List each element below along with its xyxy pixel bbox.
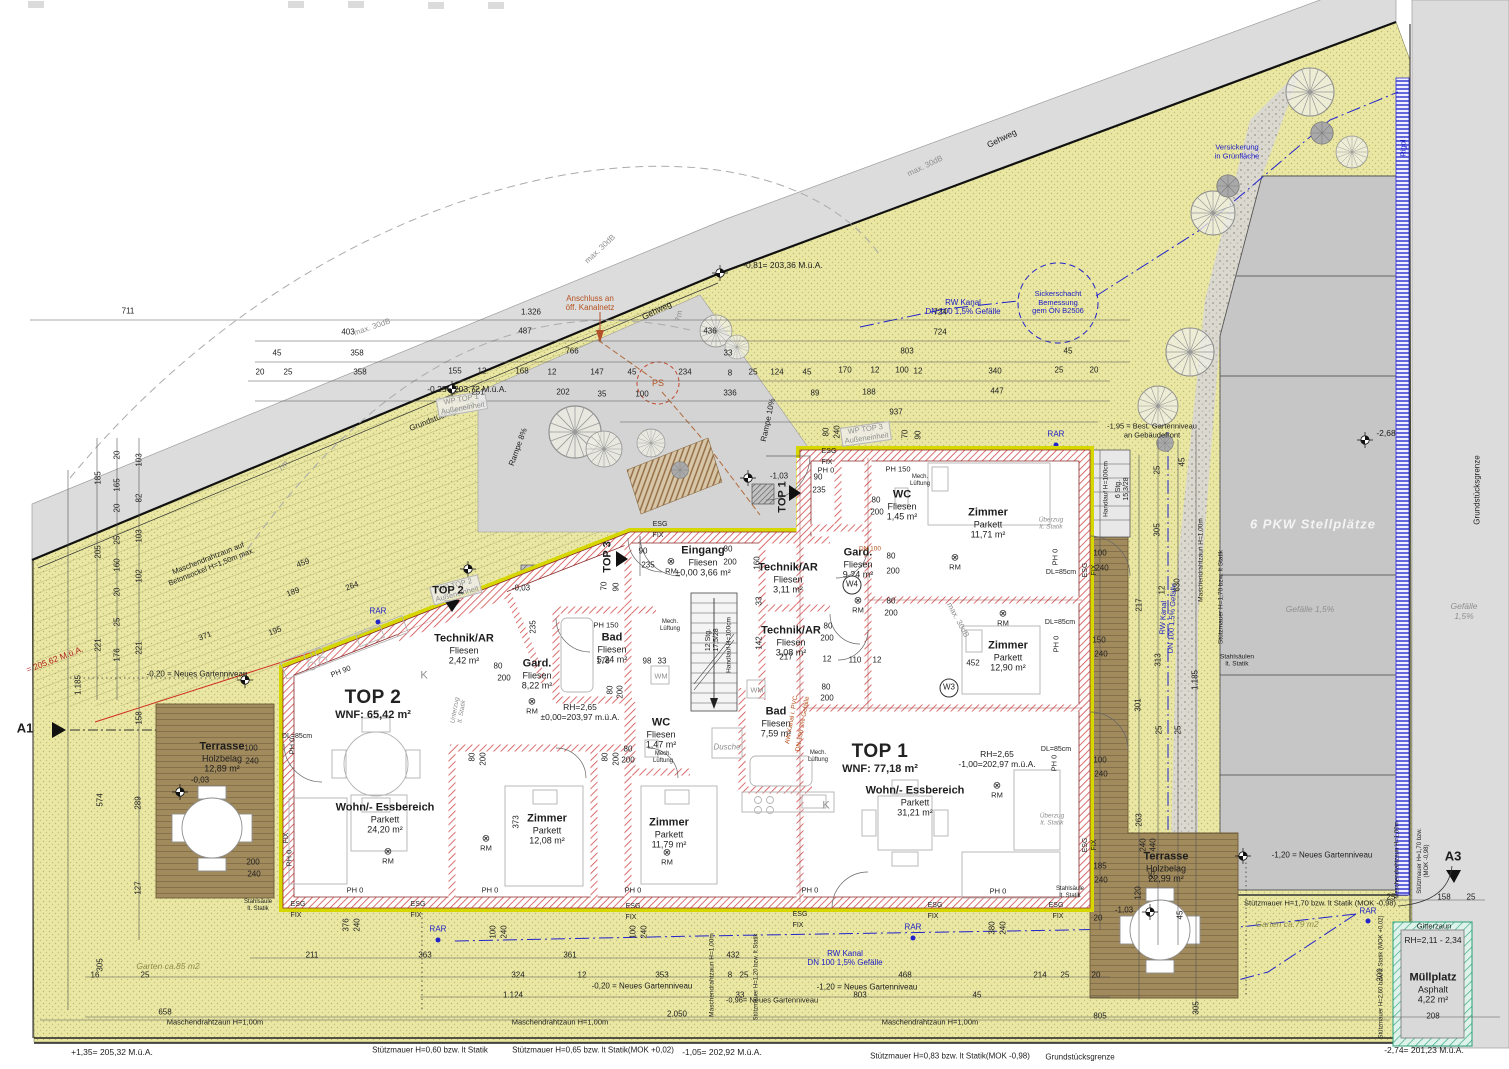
dimension-label: 70 [900, 430, 909, 439]
level: -2,68 [1376, 429, 1395, 439]
window-mark: W4 [843, 576, 862, 595]
dimension-label: 25 [284, 367, 293, 376]
dimension-label: 25 [112, 536, 121, 545]
ph-label: PH 0 [286, 850, 295, 867]
room-wc-top2: WCFliesen 1,47 m² [646, 716, 677, 749]
rar-label: RAR [1048, 429, 1065, 438]
dimension-label: 251 [471, 387, 484, 396]
note-gartenniveau: -0,20 = Neues Gartenniveau [147, 669, 248, 678]
dimension-label: 200 [615, 685, 624, 698]
room-eingang: EingangFliesen ±0,00 3,66 m² [675, 544, 730, 577]
glass-label: FIX [793, 922, 804, 930]
terrace-right-label: TerrasseHolzbelag 22,99 m² [1143, 850, 1188, 883]
slope-label: Gefälle 1,5% [1442, 602, 1487, 622]
smoke-detector: ⊗RM [382, 848, 394, 865]
rw-kanal-label: RW Kanal DN 100 1,5% Gefälle [807, 949, 882, 967]
section-mark-a3: A3 [1445, 850, 1462, 865]
level: -0,25= 203,72 M.ü.A. [427, 385, 507, 395]
dimension-label: 200 [820, 693, 833, 702]
room-wohn-top2: Wohn/- EssbereichParkett 24,20 m² [336, 801, 435, 834]
dimension-label: 1.185 [1190, 670, 1199, 690]
kanal-anschluss-label: Anschluss an öff. Kanalnetz [566, 294, 615, 312]
glass-label: ESG [1082, 838, 1090, 853]
dimension-label: 8 [728, 368, 732, 377]
dimension-label: 160 [112, 558, 121, 571]
dimension-label: 487 [518, 326, 531, 335]
dimension-label: 373 [511, 815, 520, 828]
ph-label: PH 0 [289, 738, 298, 755]
dimension-label: 80 [887, 596, 896, 605]
door-label: DL=85cm [282, 733, 312, 741]
dimension-label: 90 [611, 583, 620, 592]
dimension-label: 33 [658, 656, 667, 665]
terrace-left-label: TerrasseHolzbelag 12,89 m² [199, 740, 244, 773]
dimension-label: 100 [244, 743, 257, 752]
glass-label: FIX [291, 912, 302, 920]
aw-kanal-label: DN 100 [859, 545, 881, 552]
dimension-label: 766 [565, 346, 578, 355]
fence-label: Maschendrahtzaun H=1,00m [512, 1019, 609, 1028]
wall-label: Stützmauer H=1,70 bzw. lt Statik [1217, 550, 1224, 644]
dimension-label: 80 [605, 686, 614, 695]
room-zimmer2-top2: ZimmerParkett 11,79 m² [649, 816, 689, 849]
kitchen-label: K [420, 670, 427, 683]
dimension-label: 12 [871, 365, 880, 374]
wp-unit-label: WP TOP 1 Außeneinheit [436, 390, 489, 418]
dimension-label: 70 [599, 582, 608, 591]
steel-label: Stahlsäule lt. Statik [244, 899, 272, 913]
dimension-label: 235 [641, 560, 654, 569]
level: -0,03 [191, 775, 209, 784]
wall-label: Stützmauer H=2,60 bzw. lt Statik (MOK +0… [1379, 915, 1386, 1038]
dimension-label: 124 [770, 367, 783, 376]
dimension-label: 178 [596, 656, 609, 665]
dimension-label: 100 [635, 389, 648, 398]
boundary-label: Grundstücksgrenze [1045, 1052, 1114, 1061]
smoke-detector: ⊗RM [997, 610, 1009, 627]
dimension-label: 80 [872, 495, 881, 504]
glass-label: FIX [653, 532, 664, 540]
window-mark: W3 [940, 679, 959, 698]
wp-unit-label: WP TOP 3 Außeneinheit [840, 421, 892, 447]
level: +1,35= 205,32 M.ü.A. [71, 1048, 153, 1058]
stair-label: 12 Stg. 17,5/28 [705, 628, 721, 651]
kitchen-label: K [822, 800, 829, 813]
level: -0,03 [512, 583, 530, 592]
wm-label: WM [750, 687, 763, 696]
wall-label: Stützmauer H=0,60 bzw. lt Statik [372, 1045, 488, 1054]
glass-label: ESG [411, 901, 426, 909]
dimension-label: 240 [1138, 838, 1147, 851]
wall-label: Stützmauer H=1,20 bzw. lt Statik [754, 934, 761, 1021]
dimension-label: 202 [556, 387, 569, 396]
dimension-label: 724 [933, 307, 946, 316]
dimension-label: 25 [740, 970, 749, 979]
dimension-label: 20 [112, 451, 121, 460]
dimension-label: 25 [1173, 726, 1182, 735]
dimension-label: 35 [598, 389, 607, 398]
dimension-label: 221 [134, 641, 143, 654]
room-bad-top2: BadFliesen 5,24 m² [597, 631, 628, 664]
dimension-label: 432 [726, 950, 739, 959]
smoke-detector: ⊗RM [480, 835, 492, 852]
rar-label: RAR [370, 606, 387, 615]
dimension-label: 363 [418, 950, 431, 959]
dimension-label: 90 [814, 472, 823, 481]
smoke-detector: ⊗RM [665, 558, 677, 575]
rw-kanal-label: RW Kanal DN 100 1,5% Gefälle [925, 298, 1000, 316]
dimension-label: 100 [1093, 755, 1106, 764]
dimension-label: 324 [511, 970, 524, 979]
ph-label: PH 0 [625, 887, 642, 896]
door-label: DL=85cm [1045, 619, 1075, 627]
dimension-label: 80 [724, 544, 733, 553]
rampe-label: Rampe 8% [507, 427, 529, 467]
dusche-label: Dusche [713, 742, 740, 751]
ph-label: PH 150 [593, 622, 618, 631]
dimension-label: 45 [973, 990, 982, 999]
fence-label: Maschendrahtzaun H=1,00m [167, 1019, 264, 1028]
dimension-label: 89 [811, 388, 820, 397]
handrail-label: Handlauf H=100cm [725, 617, 732, 673]
dimension-label: 358 [350, 348, 363, 357]
dimension-label: 711 [122, 306, 135, 315]
dimension-label: 214 [1033, 970, 1046, 979]
dimension-label: 803 [853, 990, 866, 999]
handrail-label: Handlauf H=100cm [1102, 461, 1109, 517]
dimension-label: 12 [478, 366, 487, 375]
dimension-label: 200 [497, 673, 510, 682]
dimension-label: 264 [344, 579, 360, 592]
dimension-label: 158 [1437, 892, 1450, 901]
dimension-label: 336 [723, 388, 736, 397]
dimension-label: 200 [870, 507, 883, 516]
dimension-label: 436 [703, 326, 716, 335]
stair-label: 6 Stg. 15,3/28 [1115, 477, 1131, 500]
dimension-label: 200 [611, 752, 620, 765]
ph-label: PH 90 [330, 664, 353, 680]
room-zimmer1-top1: ZimmerParkett 11,71 m² [968, 506, 1008, 539]
dimension-label: 12 [873, 655, 882, 664]
dimension-label: 100 [488, 925, 497, 938]
dimension-label: 301 [1133, 698, 1142, 711]
dimension-label: 45 [273, 348, 282, 357]
dimension-label: 33 [736, 990, 745, 999]
room-technik1-top1: Technik/ARFliesen 3,11 m² [758, 561, 818, 594]
rigol-label: Rigol [1400, 139, 1409, 156]
dimension-label: 1.185 [73, 675, 82, 695]
top2-title: TOP 2WNF: 65,42 m² [335, 687, 411, 721]
dimension-label: 20 [1092, 970, 1101, 979]
garden-label: Garten ca.79 m2 [1255, 920, 1318, 930]
dimension-label: 208 [1426, 1011, 1439, 1020]
dimension-label: 724 [933, 327, 946, 336]
fence-label: Maschendrahtzaun H=1,00m [1197, 518, 1204, 602]
dimension-label: 221 [93, 638, 102, 651]
dimension-label: 147 [590, 367, 603, 376]
steel-label: Stahlsäulen lt. Statik [1220, 654, 1254, 669]
dimension-label: 200 [246, 857, 259, 866]
dimension-label: 20 [1094, 913, 1103, 922]
dimension-label: 168 [515, 366, 528, 375]
gehweg-label: Gehweg [641, 300, 674, 323]
dimension-label: 353 [655, 970, 668, 979]
dimension-label: 25 [112, 618, 121, 627]
wp-unit-label: WP TOP 2 Außeneinheit [429, 574, 482, 606]
dimension-label: 240 [247, 869, 260, 878]
dimension-label: 25 [1467, 892, 1476, 901]
dimension-label: 195 [267, 624, 283, 637]
dimension-label: 240 [245, 756, 258, 765]
glass-label: ESG [626, 903, 641, 911]
dimension-label: 188 [862, 387, 875, 396]
dimension-label: 574 [95, 793, 104, 806]
level: -0,81= 203,36 M.ü.A. [743, 261, 823, 271]
dimension-label: 12 [548, 367, 557, 376]
dimension-label: 1.124 [503, 990, 523, 999]
mech-lueftung: Mech. Lüftung [653, 751, 673, 765]
dimension-label: 205 [93, 545, 102, 558]
ph-label: PH 0 [802, 887, 819, 896]
dimension-label: 235 [812, 485, 825, 494]
sickerschacht-label: Sickerschacht Bemessung gem ÖN B2506 [1032, 290, 1084, 316]
dimension-label: 80 [494, 661, 503, 670]
noise-label: max. 30dB [583, 233, 617, 266]
dimension-label: 170 [838, 365, 851, 374]
site-plan-drawing: TOP 2WNF: 65,42 m²TOP 1WNF: 77,18 m²Tech… [0, 0, 1509, 1069]
room-zimmer2-top1: ZimmerParkett 12,90 m² [988, 639, 1028, 672]
dimension-label: 217 [779, 652, 792, 661]
section-mark-a1: A1 [17, 722, 34, 737]
garden-label: Garten ca.85 m2 [136, 962, 199, 972]
dimension-label: 25 [749, 367, 758, 376]
mech-lueftung: Mech. Lüftung [660, 619, 680, 633]
dimension-label: 240 [1094, 769, 1107, 778]
dimension-label: 376 [341, 918, 350, 931]
rh-muell: RH=2,11 - 2,34 [1404, 936, 1461, 946]
glass-label: FIX [626, 914, 637, 922]
dimension-label: 240 [352, 918, 361, 931]
glass-label: ESG [653, 521, 668, 529]
dimension-label: 176 [112, 648, 121, 661]
wall-label: Stützmauer H=1,70 bzw. (MOK -0,98) [1417, 828, 1431, 894]
room-zimmer1-top2: ZimmerParkett 12,08 m² [527, 812, 567, 845]
dimension-label: 189 [285, 585, 301, 598]
dimension-label: 45 [1175, 911, 1184, 920]
glass-label: ESG [291, 901, 306, 909]
dimension-label: 305 [1152, 523, 1161, 536]
dimension-label: 313 [1153, 653, 1162, 666]
note-gartenniveau: -1,20 = Neues Gartenniveau [1272, 850, 1373, 859]
glass-label: ESG [822, 448, 837, 456]
glass-label: ESG [928, 902, 943, 910]
beam-label: Überzug lt. Statik [1039, 517, 1064, 532]
dimension-label: 20 [112, 588, 121, 597]
dimension-label: 440 [1148, 838, 1157, 851]
dimension-label: 82 [134, 494, 143, 503]
dimension-label: 80 [821, 428, 830, 437]
dimension-label: 33 [724, 348, 733, 357]
dimension-label: 25 [1152, 466, 1161, 475]
rar-label: RAR [1360, 906, 1377, 915]
dimension-label: 20 [256, 367, 265, 376]
note-gartenniveau: -0,20 = Neues Gartenniveau [592, 981, 693, 990]
room-gard-top2: Gard.Fliesen 8,22 m² [522, 657, 553, 690]
dimension-label: 240 [832, 425, 841, 438]
dimension-label: 80 [467, 753, 476, 762]
ph-label: PH 0 [1052, 549, 1061, 566]
beam-label: Unterzug lt. Statik [449, 697, 468, 726]
dimension-label: 120 [1133, 886, 1142, 899]
dimension-label: 240 [1094, 875, 1107, 884]
door-label: DL=85cm [1046, 569, 1076, 577]
dimension-label: 142 [754, 636, 763, 649]
dimension-label: 211 [306, 950, 319, 959]
entry-top2: TOP 2 [432, 585, 463, 598]
dimension-label: 358 [353, 367, 366, 376]
dimension-label: 403 [341, 327, 354, 336]
note-gartenniveau: -1,20 = Neues Gartenniveau [817, 982, 918, 991]
dimension-label: 630 [1172, 578, 1181, 591]
dimension-label: 289 [133, 796, 142, 809]
dimension-label: 45 [803, 367, 812, 376]
dimension-label: 217 [1134, 598, 1143, 611]
room-bad-top1: BadFliesen 7,59 m² [761, 705, 792, 738]
note-gartenniveau: -1,95 = Best. Gartenniveau an Gebäudefro… [1107, 422, 1197, 439]
dimension-label: 33 [754, 597, 763, 606]
radius-label: 7m [674, 310, 685, 323]
slope-label: Gefälle 1,5% [1286, 605, 1335, 615]
dimension-label: 80 [624, 744, 633, 753]
dimension-label: 25 [1387, 892, 1396, 901]
smoke-detector: ⊗RM [949, 554, 961, 571]
dimension-label: 371 [197, 629, 213, 642]
wall-label: Stützmauer H=1,70 bzw. lt Statik (MOK -0… [1244, 900, 1396, 909]
glass-label: FIX [283, 833, 291, 844]
dimension-label: 103 [134, 453, 143, 466]
room-technik2-top1: Technik/ARFliesen 3,08 m² [761, 624, 821, 657]
dimension-label: 447 [990, 386, 1003, 395]
gehweg-label: Gehweg [986, 128, 1019, 151]
glass-label: FIX [822, 459, 833, 467]
rampe-label: Rampe 10% [759, 398, 777, 443]
level: -1,05= 202,92 M.ü.A. [682, 1048, 762, 1058]
dimension-label: 305 [95, 958, 104, 971]
dimension-label: 80 [600, 753, 609, 762]
smoke-detector: ⊗RM [526, 698, 538, 715]
entry-top1: TOP 1 [777, 481, 790, 512]
dimension-label: 110 [849, 655, 862, 664]
dimension-label: 165 [112, 478, 121, 491]
note-gartenniveau: -0,96= Neues Gartenniveau [726, 997, 818, 1006]
glass-label: FIX [1091, 565, 1099, 576]
smoke-detector: ⊗RM [852, 597, 864, 614]
fence-label: Maschendrahtzaun auf Betonsockel H=1,50m… [164, 538, 256, 588]
glass-label: FIX [1053, 913, 1064, 921]
dimension-label: 305 [1191, 1001, 1200, 1014]
rar-label: RAR [430, 924, 447, 933]
dimension-label: 240 [1094, 649, 1107, 658]
dimension-label: 8 [728, 970, 732, 979]
dimension-label: 127 [133, 881, 142, 894]
glass-label: FIX [928, 913, 939, 921]
mech-lueftung: Mech. Lüftung [808, 750, 828, 764]
fence-label: Maschendrahtzaun H=1,00m [708, 933, 715, 1017]
noise-label: max. 30dB [906, 153, 944, 178]
dimension-label: 80 [887, 551, 896, 560]
dimension-label: 80 [822, 682, 831, 691]
dimension-label: 200 [884, 608, 897, 617]
dimension-label: 20 [1090, 365, 1099, 374]
level: = 205,62 M.ü.A. [25, 645, 85, 676]
dimension-label: 240 [499, 925, 508, 938]
aw-kanal-label: DN 150 2% Gefälle [794, 696, 811, 752]
dimension-label: 937 [889, 407, 902, 416]
wall-label: Stützmauer H=0,83 bzw. lt Statik(MOK -0,… [870, 1051, 1030, 1060]
dimension-label: 45 [1177, 458, 1186, 467]
dimension-label: 16 [91, 970, 100, 979]
boundary-label: Grundstücksgrenze [1472, 455, 1481, 524]
dimension-label: 459 [295, 556, 311, 569]
dimension-label: 12 [1157, 586, 1166, 595]
mech-lueftung: Mech. Lüftung [910, 474, 930, 488]
dimension-label: 90 [913, 431, 922, 440]
dimension-label: 200 [820, 633, 833, 642]
room-wohn-top1: Wohn/- EssbereichParkett 31,21 m² [866, 784, 965, 817]
dimension-label: 200 [478, 752, 487, 765]
dimension-label: 200 [886, 566, 899, 575]
glass-label: ESG [1049, 902, 1064, 910]
dimension-label: 240 [639, 925, 648, 938]
door-label: DL=85cm [1041, 746, 1071, 754]
dimension-label: 468 [898, 970, 911, 979]
dimension-label: 150 [1092, 635, 1105, 644]
ph-label: PH 0 [1051, 755, 1060, 772]
dimension-label: 235 [528, 620, 537, 633]
dimension-label: 234 [678, 367, 691, 376]
ph-label: PH 0 [482, 887, 499, 896]
glass-label: FIX [1091, 840, 1099, 851]
dimension-label: 98 [643, 656, 652, 665]
boundary-label: Grundstücksgrenze [408, 399, 476, 433]
rw-kanal-label: RW Kanal DN 100 1,5% Gefälle [1158, 582, 1179, 653]
dimension-label: 25 [1147, 871, 1156, 880]
noise-label: max. 30dB [352, 316, 391, 337]
dimension-label: 2.050 [667, 1009, 687, 1018]
level: -2,74= 201,23 M.ü.A. [1384, 1046, 1464, 1056]
glass-label: ESG [793, 911, 808, 919]
fence-label: Maschendrahtzaun H=1,00m [1395, 821, 1402, 898]
dimension-label: 25 [141, 970, 150, 979]
dimension-label: 100 [895, 365, 908, 374]
dimension-label: 340 [988, 366, 1001, 375]
room-gard-top1: Gard.Fliesen 9,24 m² [843, 546, 874, 579]
beam-label: Überzug lt. Statik [1040, 813, 1065, 828]
dimension-label: 160 [752, 556, 761, 569]
versickerung-label: Versickerung in Grünfläche [1215, 143, 1260, 160]
rh-top1: RH=2,65 -1,00=202,97 m.ü.A. [958, 750, 1035, 770]
glass-label: ESG [1082, 563, 1090, 578]
dimension-label: 380 [987, 921, 996, 934]
dimension-label: 100 [1093, 548, 1106, 557]
dimension-label: 25 [1055, 365, 1064, 374]
dimension-label: 45 [628, 367, 637, 376]
rar-label: RAR [905, 922, 922, 931]
level: -1,03 [770, 471, 788, 480]
dimension-label: 300 [1375, 968, 1384, 981]
dimension-label: 805 [1093, 1011, 1106, 1020]
dimension-label: 80 [824, 621, 833, 630]
